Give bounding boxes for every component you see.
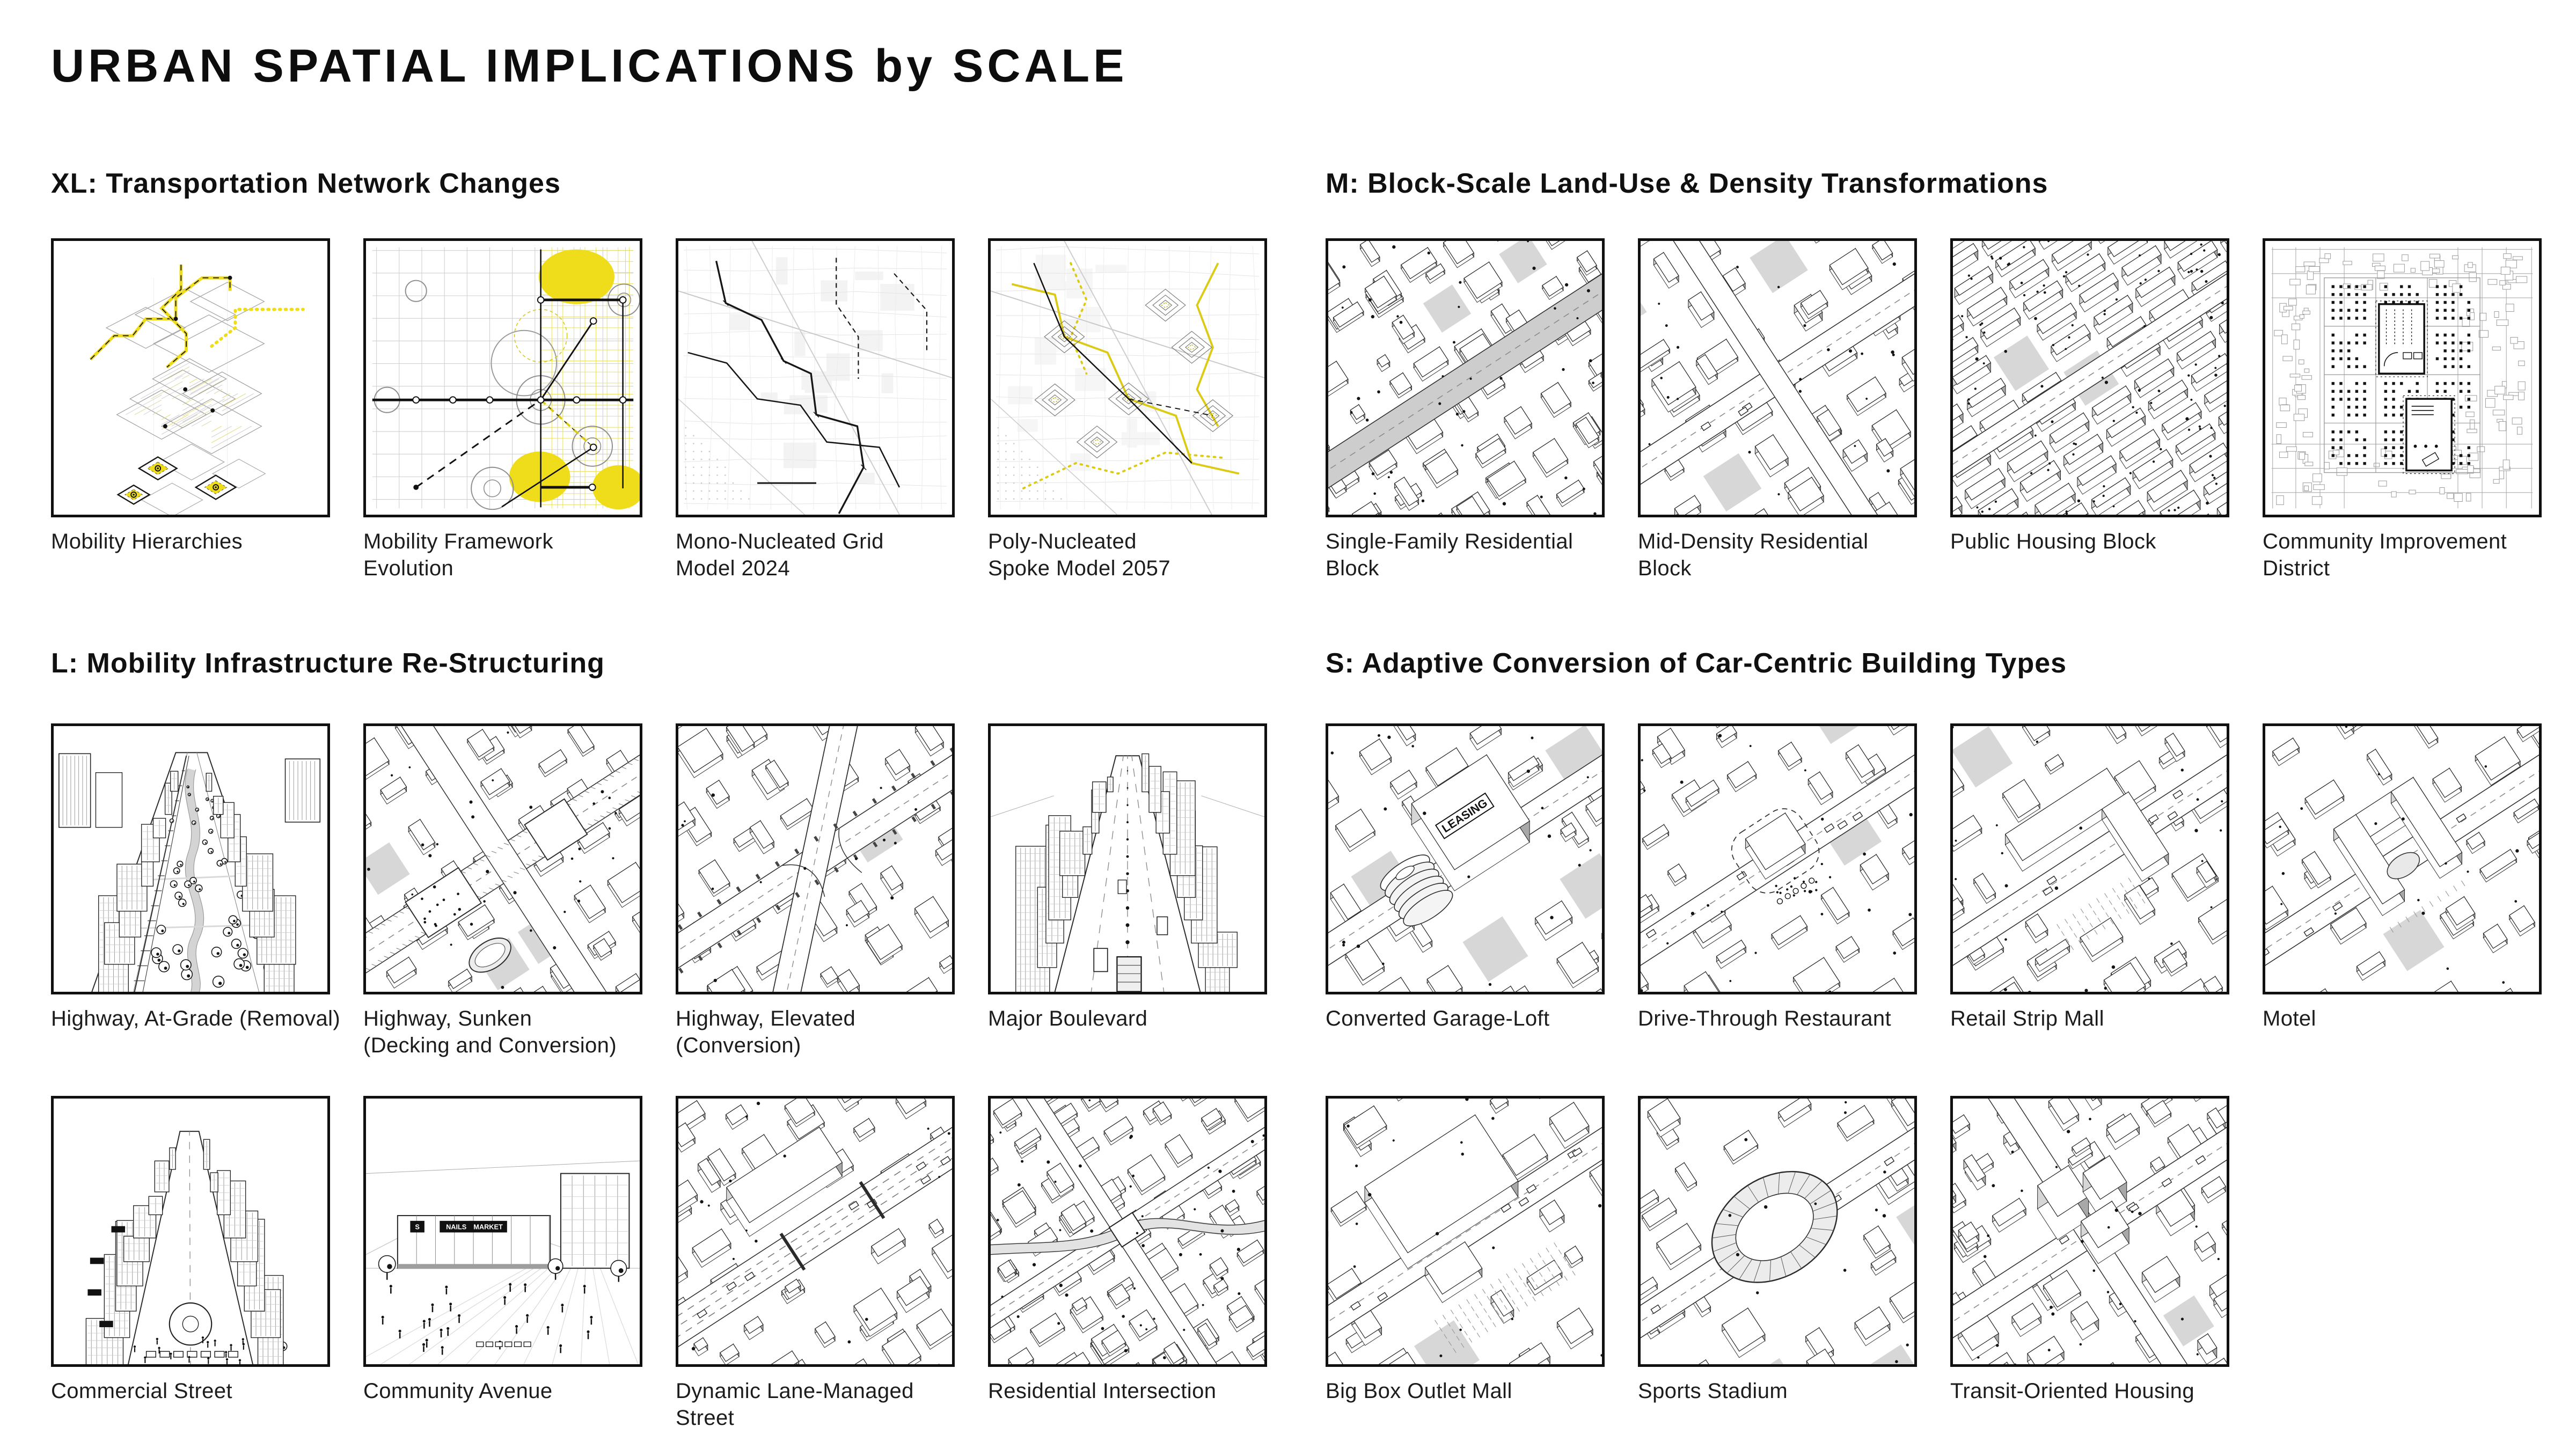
section-header-l: L: Mobility Infrastructure Re-Structurin… (51, 647, 605, 679)
figure-persp-community-avenue: SNAILSMARKETCommunity Avenue (363, 1096, 642, 1431)
thumbnail-row-l2: Commercial StreetSNAILSMARKETCommunity A… (51, 1096, 1267, 1431)
section-header-m: M: Block-Scale Land-Use & Density Transf… (1326, 167, 2048, 200)
figure-axon-highway-elevated: Highway, Elevated (Conversion) (676, 723, 955, 1059)
figure-axon-garage-loft: LEASINGConverted Garage-Loft (1326, 723, 1605, 1032)
axon-public-housing-thumbnail (1950, 238, 2229, 517)
poly-spoke-map-thumbnail (988, 238, 1267, 517)
axon-garage-loft-thumbnail: LEASING (1326, 723, 1605, 994)
persp-community-avenue-thumbnail: SNAILSMARKET (363, 1096, 642, 1367)
figure-axon-public-housing: Public Housing Block (1950, 238, 2229, 582)
figure-axon-mid-density: Mid-Density Residential Block (1638, 238, 1917, 582)
figure-axon-residential-intersection: Residential Intersection (988, 1096, 1267, 1431)
poster-page: { "page": { "title": "URBAN SPATIAL IMPL… (0, 0, 2576, 1449)
axon-highway-sunken-thumbnail (363, 723, 642, 994)
figure-axon-stadium: Sports Stadium (1638, 1096, 1917, 1404)
section-header-xl: XL: Transportation Network Changes (51, 167, 561, 200)
figure-axon-highway-sunken: Highway, Sunken (Decking and Conversion) (363, 723, 642, 1059)
thumbnail-caption: Sports Stadium (1638, 1378, 1940, 1404)
thumbnail-caption: Drive-Through Restaurant (1638, 1005, 1940, 1032)
thumbnail-caption: Converted Garage-Loft (1326, 1005, 1627, 1032)
thumbnail-caption: Highway, Elevated (Conversion) (676, 1005, 977, 1059)
figure-persp-boulevard: Major Boulevard (988, 723, 1267, 1059)
thumbnail-caption: Community Improvement District (2263, 528, 2564, 582)
figure-axon-strip-mall: Retail Strip Mall (1950, 723, 2229, 1032)
persp-commercial-street-thumbnail (51, 1096, 330, 1367)
axon-mid-density-thumbnail (1638, 238, 1917, 517)
thumbnail-caption: Highway, At-Grade (Removal) (51, 1005, 353, 1032)
axon-highway-elevated-thumbnail (676, 723, 955, 994)
axon-motel-thumbnail (2263, 723, 2542, 994)
thumbnail-row-s2: Big Box Outlet MallSports StadiumTransit… (1326, 1096, 2229, 1404)
figure-axon-dynamic-lane: Dynamic Lane-Managed Street (676, 1096, 955, 1431)
thumbnail-caption: Transit-Oriented Housing (1950, 1378, 2252, 1404)
thumbnail-row-xl: Mobility HierarchiesMobility Framework E… (51, 238, 1267, 582)
thumbnail-caption: Big Box Outlet Mall (1326, 1378, 1627, 1404)
figure-axon-toh: Transit-Oriented Housing (1950, 1096, 2229, 1404)
thumbnail-caption: Retail Strip Mall (1950, 1005, 2252, 1032)
axon-residential-intersection-thumbnail (988, 1096, 1267, 1367)
thumbnail-row-s1: LEASINGConverted Garage-LoftDrive-Throug… (1326, 723, 2542, 1032)
thumbnail-caption: Major Boulevard (988, 1005, 1290, 1032)
figure-axon-drive-through: Drive-Through Restaurant (1638, 723, 1917, 1032)
figure-poly-spoke-map: Poly-Nucleated Spoke Model 2057 (988, 238, 1267, 582)
section-header-s: S: Adaptive Conversion of Car-Centric Bu… (1326, 647, 2067, 679)
page-title: URBAN SPATIAL IMPLICATIONS by SCALE (51, 40, 1128, 93)
thumbnail-row-m: Single-Family Residential BlockMid-Densi… (1326, 238, 2542, 582)
persp-highway-atgrade-thumbnail (51, 723, 330, 994)
thumbnail-row-l1: Highway, At-Grade (Removal)Highway, Sunk… (51, 723, 1267, 1059)
figure-persp-highway-atgrade: Highway, At-Grade (Removal) (51, 723, 330, 1059)
thumbnail-caption: Public Housing Block (1950, 528, 2252, 555)
axon-drive-through-thumbnail (1638, 723, 1917, 994)
thumbnail-caption: Poly-Nucleated Spoke Model 2057 (988, 528, 1290, 582)
framework-grid-nodes-thumbnail (363, 238, 642, 517)
figure-axon-big-box-mall: Big Box Outlet Mall (1326, 1096, 1605, 1404)
axon-toh-thumbnail (1950, 1096, 2229, 1367)
thumbnail-caption: Mono-Nucleated Grid Model 2024 (676, 528, 977, 582)
thumbnail-caption: Highway, Sunken (Decking and Conversion) (363, 1005, 665, 1059)
axon-layer-hierarchy-thumbnail (51, 238, 330, 517)
figure-framework-grid-nodes: Mobility Framework Evolution (363, 238, 642, 582)
figure-axon-single-family: Single-Family Residential Block (1326, 238, 1605, 582)
figure-axon-layer-hierarchy: Mobility Hierarchies (51, 238, 330, 582)
thumbnail-caption: Commercial Street (51, 1378, 353, 1404)
persp-boulevard-thumbnail (988, 723, 1267, 994)
thumbnail-caption: Mid-Density Residential Block (1638, 528, 1940, 582)
thumbnail-caption: Single-Family Residential Block (1326, 528, 1627, 582)
axon-strip-mall-thumbnail (1950, 723, 2229, 994)
thumbnail-caption: Mobility Hierarchies (51, 528, 353, 555)
thumbnail-caption: Residential Intersection (988, 1378, 1290, 1404)
axon-stadium-thumbnail (1638, 1096, 1917, 1367)
mono-grid-map-thumbnail (676, 238, 955, 517)
thumbnail-caption: Dynamic Lane-Managed Street (676, 1378, 977, 1431)
axon-big-box-mall-thumbnail (1326, 1096, 1605, 1367)
plan-improvement-district-thumbnail (2263, 238, 2542, 517)
thumbnail-caption: Motel (2263, 1005, 2564, 1032)
axon-single-family-thumbnail (1326, 238, 1605, 517)
figure-mono-grid-map: Mono-Nucleated Grid Model 2024 (676, 238, 955, 582)
figure-plan-improvement-district: Community Improvement District (2263, 238, 2542, 582)
figure-axon-motel: Motel (2263, 723, 2542, 1032)
thumbnail-caption: Mobility Framework Evolution (363, 528, 665, 582)
thumbnail-caption: Community Avenue (363, 1378, 665, 1404)
axon-dynamic-lane-thumbnail (676, 1096, 955, 1367)
figure-persp-commercial-street: Commercial Street (51, 1096, 330, 1431)
